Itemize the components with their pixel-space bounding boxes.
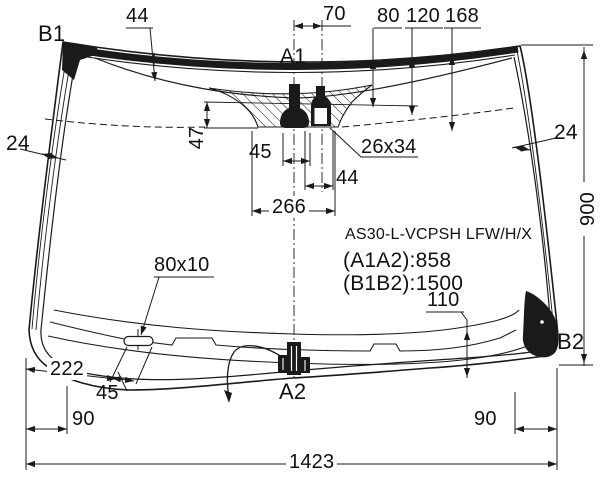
diagonal-a1a2: (A1A2):858 xyxy=(343,249,451,272)
dim-margin-right: 90 xyxy=(474,408,497,430)
point-label-a2: A2 xyxy=(279,380,306,404)
glass-type-code: AS30-L-VCPSH LFW/H/X xyxy=(345,226,532,244)
dim-depth-168: 168 xyxy=(445,5,479,27)
dim-bracket-size: 26x34 xyxy=(361,136,417,158)
dim-bottom-band-height: 110 xyxy=(427,289,460,311)
dim-mount-width: 45 xyxy=(249,141,272,163)
dim-shade-band-height: 47 xyxy=(186,123,208,153)
dim-edge-band-left: 24 xyxy=(6,132,30,155)
dim-top-band-width: 44 xyxy=(126,5,149,27)
point-label-b1: B1 xyxy=(38,22,65,46)
dim-edge-band-right: 24 xyxy=(554,121,578,144)
dim-depth-80: 80 xyxy=(377,5,400,27)
point-label-a1: A1 xyxy=(280,45,306,68)
dim-slot-offset: 45 xyxy=(96,382,119,404)
dim-slot-size: 80x10 xyxy=(154,254,210,276)
dim-bracket-width: 44 xyxy=(336,167,359,189)
dim-overall-width: 1423 xyxy=(286,451,337,473)
dim-margin-left: 90 xyxy=(72,408,95,430)
corner-patch-b2 xyxy=(523,291,559,357)
point-label-b2: B2 xyxy=(557,330,584,354)
dim-depth-120: 120 xyxy=(406,5,440,27)
corner-patch-b1 xyxy=(62,42,98,80)
mounting-slot xyxy=(124,329,153,350)
dim-mount-spacing: 70 xyxy=(323,3,346,25)
dim-glass-height: 900 xyxy=(577,182,599,236)
windshield-spec-diagram: B1 A1 B2 A2 44 70 80 120 168 24 24 47 45… xyxy=(0,0,600,480)
dim-corner-width: 222 xyxy=(47,358,87,380)
dim-shade-band-width: 266 xyxy=(269,196,309,218)
